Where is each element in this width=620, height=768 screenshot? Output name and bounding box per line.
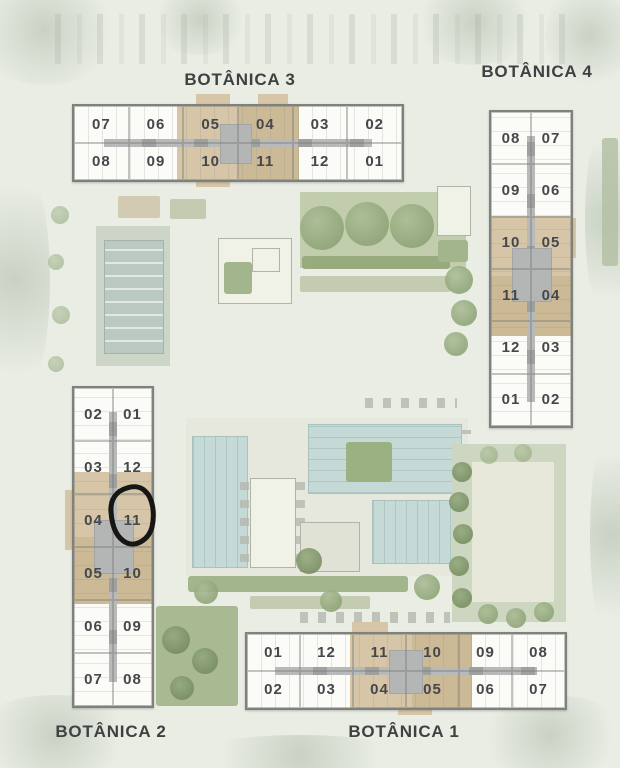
unit-cell: 06	[531, 164, 571, 216]
lounge-chairs	[240, 482, 249, 562]
tree-canopy-shadow	[0, 0, 120, 85]
building-title-botanica-3: BOTÂNICA 3	[120, 70, 360, 90]
unit-cell: 10	[491, 217, 531, 269]
tree	[453, 524, 473, 544]
tree	[170, 676, 194, 700]
unit-cell: 05	[531, 217, 571, 269]
planter	[170, 199, 206, 219]
cabana	[250, 478, 296, 568]
unit-cell: 04	[531, 269, 571, 321]
tree	[48, 356, 64, 372]
event-lawn	[472, 462, 554, 602]
unit-cell: 02	[247, 671, 300, 708]
unit-cell: 11	[491, 269, 531, 321]
kids-pool	[372, 500, 460, 564]
tree	[534, 602, 554, 622]
tree	[452, 588, 472, 608]
tree	[345, 202, 389, 246]
unit-grid: 08 07 09 06 10 05 11 04 12 03 01 02	[491, 112, 571, 426]
unit-cell: 06	[459, 671, 512, 708]
unit-cell: 10	[406, 634, 459, 671]
unit-cell: 09	[113, 600, 152, 653]
unit-grid: 07 06 05 04 03 02 08 09 10 11 12 01	[74, 106, 402, 180]
tree	[300, 206, 344, 250]
hedge	[188, 576, 408, 592]
unit-cell: 02	[347, 106, 402, 143]
unit-cell: 06	[74, 600, 113, 653]
building-botanica-4: 08 07 09 06 10 05 11 04 12 03 01 02	[489, 110, 573, 428]
unit-cell: 12	[491, 321, 531, 373]
pool-island	[346, 442, 392, 482]
unit-cell: 08	[113, 653, 152, 706]
unit-cell: 11	[238, 143, 293, 180]
stair-tab	[65, 490, 72, 550]
unit-cell: 01	[491, 374, 531, 426]
planter	[250, 596, 370, 609]
unit-cell: 12	[293, 143, 348, 180]
unit-cell: 12	[300, 634, 353, 671]
tree	[48, 254, 64, 270]
unit-cell: 03	[300, 671, 353, 708]
tree	[449, 492, 469, 512]
tree	[444, 332, 468, 356]
tree	[52, 306, 70, 324]
unit-cell: 05	[74, 547, 113, 600]
hedge	[438, 240, 468, 262]
utility-structure	[437, 186, 471, 236]
tree	[192, 648, 218, 674]
tree	[414, 574, 440, 600]
tree-canopy-shadow	[590, 420, 620, 650]
building-botanica-3: 07 06 05 04 03 02 08 09 10 11 12 01	[72, 104, 404, 182]
tree-canopy-shadow	[0, 150, 50, 410]
building-botanica-1: 01 12 11 10 09 08 02 03 04 05 06 07	[245, 632, 567, 710]
hedge	[224, 262, 252, 294]
tree	[445, 266, 473, 294]
tree	[51, 206, 69, 224]
unit-cell: 07	[512, 671, 565, 708]
unit-cell: 01	[113, 388, 152, 441]
site-plan: 07 06 05 04 03 02 08 09 10 11 12 01 08 0…	[0, 0, 620, 768]
unit-cell: 04	[238, 106, 293, 143]
tree	[478, 604, 498, 624]
unit-cell: 07	[74, 106, 129, 143]
unit-cell: 09	[491, 164, 531, 216]
planter	[118, 196, 160, 218]
tree	[449, 556, 469, 576]
lounge-chairs	[365, 398, 457, 408]
unit-cell: 05	[406, 671, 459, 708]
unit-cell: 02	[531, 374, 571, 426]
building-title-botanica-4: BOTÂNICA 4	[455, 62, 619, 82]
tree	[320, 590, 342, 612]
hand-drawn-circle-annotation	[102, 481, 160, 551]
unit-cell: 11	[353, 634, 406, 671]
unit-cell: 08	[512, 634, 565, 671]
tree	[162, 626, 190, 654]
unit-cell: 04	[353, 671, 406, 708]
unit-cell: 06	[129, 106, 184, 143]
tree	[451, 300, 477, 326]
planter	[300, 276, 450, 292]
unit-cell: 03	[293, 106, 348, 143]
tree	[452, 462, 472, 482]
pavilion-roof	[252, 248, 280, 272]
unit-cell: 10	[183, 143, 238, 180]
unit-cell: 02	[74, 388, 113, 441]
unit-cell: 07	[531, 112, 571, 164]
hedge	[602, 138, 618, 266]
unit-grid: 01 12 11 10 09 08 02 03 04 05 06 07	[247, 634, 565, 708]
unit-cell: 01	[247, 634, 300, 671]
tree	[514, 444, 532, 462]
tree	[296, 548, 322, 574]
unit-cell: 08	[74, 143, 129, 180]
building-title-botanica-1: BOTÂNICA 1	[318, 722, 490, 742]
unit-cell: 10	[113, 547, 152, 600]
hedge	[302, 256, 450, 269]
unit-cell: 09	[459, 634, 512, 671]
tree	[480, 446, 498, 464]
tree	[390, 204, 434, 248]
building-title-botanica-2: BOTÂNICA 2	[28, 722, 194, 742]
unit-cell: 08	[491, 112, 531, 164]
tree	[506, 608, 526, 628]
unit-cell: 07	[74, 653, 113, 706]
unit-cell: 05	[183, 106, 238, 143]
unit-cell: 01	[347, 143, 402, 180]
tree	[194, 580, 218, 604]
unit-cell: 03	[531, 321, 571, 373]
unit-cell: 09	[129, 143, 184, 180]
sports-court	[104, 240, 164, 354]
